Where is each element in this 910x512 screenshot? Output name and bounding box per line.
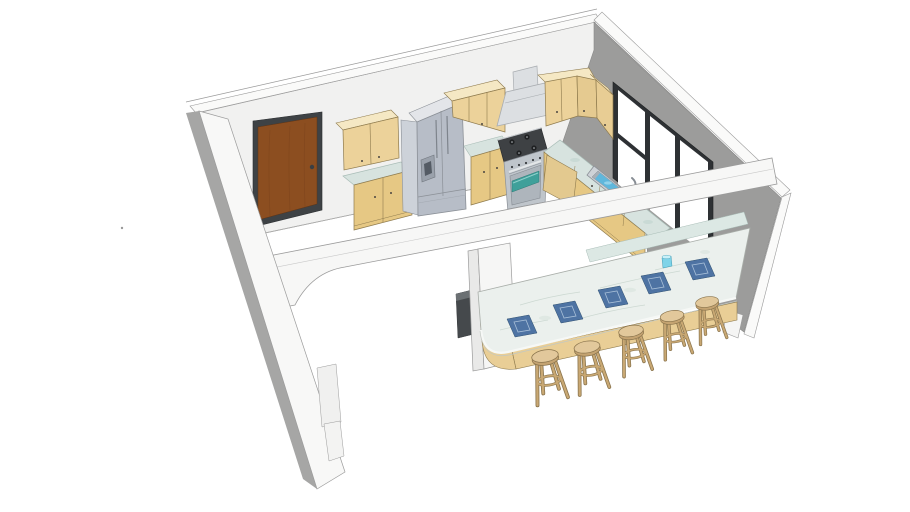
marble-speck (570, 158, 580, 162)
marble-speck (700, 250, 710, 254)
upper-cabinet-angled-face (577, 76, 597, 118)
kitchen-3d-render (0, 0, 910, 512)
marble-speck (539, 316, 551, 320)
cabinet-knob (483, 171, 485, 173)
cup-rim (662, 255, 671, 259)
cabinet-knob (556, 111, 558, 113)
gas-range (498, 128, 547, 213)
window-pane-middle (650, 116, 675, 230)
cabinet-knob (583, 110, 585, 112)
cabinet-knob (378, 156, 380, 158)
cabinet-knob (481, 123, 483, 125)
model-viewport[interactable] (0, 0, 910, 512)
marble-speck (624, 288, 636, 292)
entry-door (253, 112, 322, 227)
marble-speck (643, 220, 653, 224)
door-panel (258, 117, 317, 220)
cabinet-knob (604, 124, 606, 126)
cabinet-knob (591, 185, 593, 187)
floor-speck (121, 227, 123, 229)
water-highlight (604, 181, 612, 184)
cabinet-knob (496, 167, 498, 169)
cabinet-knob (361, 160, 363, 162)
cabinet-knob (390, 192, 392, 194)
door-knob (310, 165, 314, 169)
cup (662, 255, 672, 268)
fridge-side (401, 120, 418, 215)
cabinet-knob (374, 196, 376, 198)
